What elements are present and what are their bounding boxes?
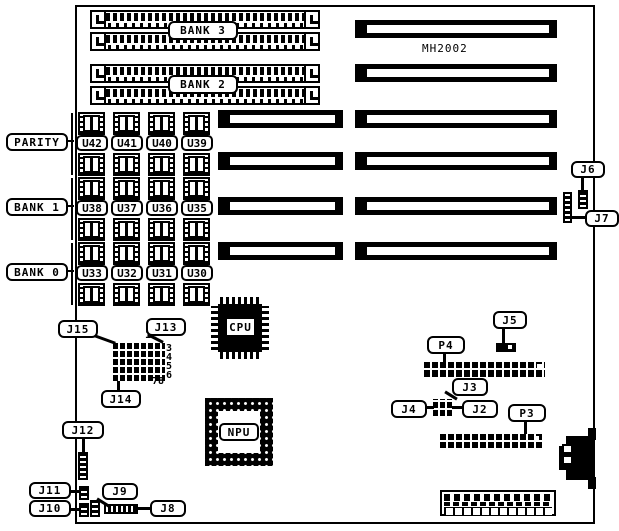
callout-tail	[571, 216, 586, 219]
dip-chip	[148, 177, 175, 200]
cpu-pins-icon	[220, 297, 260, 304]
header-p3	[440, 434, 542, 448]
jumper-j12	[78, 452, 88, 480]
callout-j14: J14	[101, 390, 141, 408]
simm-latch-icon	[304, 10, 320, 29]
callout-j7: J7	[585, 210, 619, 227]
dip-chip	[183, 112, 210, 135]
chip-label: U41	[111, 135, 143, 151]
dip-chip	[113, 283, 140, 306]
cpu-pins-icon	[211, 306, 218, 350]
callout-p3: P3	[508, 404, 546, 422]
simm-latch-icon	[304, 64, 320, 83]
dip-chip	[183, 242, 210, 265]
jumper-j5	[496, 343, 516, 352]
chip-label: U35	[181, 200, 213, 216]
callout-tail	[137, 507, 151, 510]
group-bracket	[71, 178, 73, 240]
chip-label: U39	[181, 135, 213, 151]
dip-chip	[148, 242, 175, 265]
dip-chip	[78, 218, 105, 241]
simm-latch-icon	[90, 10, 106, 29]
motherboard-diagram: BANK 3 BANK 2 MH2002 U42U41U40U39U38U37U…	[0, 0, 619, 531]
simm-latch-icon	[90, 32, 106, 51]
power-pins-icon	[444, 494, 552, 501]
group-bracket	[71, 243, 73, 305]
callout-j9: J9	[102, 483, 138, 500]
isa-slot	[355, 242, 557, 260]
callout-tail	[82, 438, 85, 452]
power-connector	[440, 490, 556, 516]
callout-j15: J15	[58, 320, 98, 338]
chip-label: U30	[181, 265, 213, 281]
isa-slot	[355, 20, 557, 38]
jumper-j10	[79, 503, 89, 517]
bank3-label: BANK 3	[168, 21, 238, 40]
chip-label: U40	[146, 135, 178, 151]
callout-j13: J13	[146, 318, 186, 336]
simm-latch-icon	[304, 86, 320, 105]
dip-chip	[113, 177, 140, 200]
isa-slot	[355, 110, 557, 128]
callout-j3: J3	[452, 378, 488, 396]
dip-chip	[78, 242, 105, 265]
dip-chip	[113, 218, 140, 241]
jumper-j6	[578, 190, 588, 209]
isa-slot-extension	[218, 110, 343, 128]
callout-p4: P4	[427, 336, 465, 354]
dip-chip	[78, 153, 105, 176]
chip-label: U42	[76, 135, 108, 151]
callout-j8: J8	[150, 500, 186, 517]
isa-slot-extension	[218, 242, 343, 260]
dip-chip	[148, 153, 175, 176]
dip-chip	[113, 242, 140, 265]
dip-chip	[148, 218, 175, 241]
callout-j12: J12	[62, 421, 104, 439]
group-bracket	[71, 113, 73, 175]
bank2-label: BANK 2	[168, 75, 238, 94]
chip-label: U31	[146, 265, 178, 281]
dip-chip	[183, 153, 210, 176]
callout-j6: J6	[571, 161, 605, 178]
power-pins-icon	[444, 502, 552, 506]
jumper-j11	[79, 486, 89, 500]
callout-tail	[581, 177, 584, 191]
isa-slot	[355, 197, 557, 215]
chip-label: U33	[76, 265, 108, 281]
bank0-label: BANK 0	[6, 263, 68, 281]
callout-j5: J5	[493, 311, 527, 329]
isa-slot-extension	[218, 152, 343, 170]
dip-chip	[78, 112, 105, 135]
dip-chip	[183, 283, 210, 306]
callout-tail	[502, 328, 505, 343]
isa-slot	[355, 64, 557, 82]
cpu-pins-icon	[220, 352, 260, 359]
simm-latch-icon	[90, 86, 106, 105]
chip-label: U36	[146, 200, 178, 216]
dip-chip	[183, 177, 210, 200]
dip-chip	[113, 112, 140, 135]
callout-j10: J10	[29, 500, 71, 517]
isa-slot-extension	[218, 197, 343, 215]
dip-chip	[148, 283, 175, 306]
header-p4	[424, 362, 545, 377]
dip-chip	[183, 218, 210, 241]
board-model-text: MH2002	[422, 42, 468, 55]
cpu-label: CPU	[226, 318, 255, 336]
callout-j2: J2	[462, 400, 498, 418]
keyboard-connector	[588, 477, 596, 489]
npu-label: NPU	[219, 423, 259, 441]
simm-latch-icon	[90, 64, 106, 83]
chip-label: U37	[111, 200, 143, 216]
keyboard-connector-hole	[562, 444, 573, 454]
chip-label: U38	[76, 200, 108, 216]
cpu-pins-icon	[262, 306, 269, 350]
pin-label-bottom: 78	[152, 377, 164, 386]
parity-label: PARITY	[6, 133, 68, 151]
keyboard-connector-hole	[562, 455, 573, 465]
dip-chip	[113, 153, 140, 176]
callout-j11: J11	[29, 482, 71, 499]
callout-tail	[524, 421, 527, 434]
dip-chip	[148, 112, 175, 135]
chip-label: U32	[111, 265, 143, 281]
dip-chip	[78, 283, 105, 306]
callout-j4: J4	[391, 400, 427, 418]
isa-slot	[355, 152, 557, 170]
jumper-block-j3	[433, 399, 453, 416]
callout-tail	[443, 353, 446, 362]
power-pins-icon	[444, 507, 552, 516]
jumper-j9	[90, 500, 100, 517]
pin-label-right: 3 4 5 6	[166, 344, 172, 380]
simm-latch-icon	[304, 32, 320, 51]
dip-chip	[78, 177, 105, 200]
bank1-label: BANK 1	[6, 198, 68, 216]
